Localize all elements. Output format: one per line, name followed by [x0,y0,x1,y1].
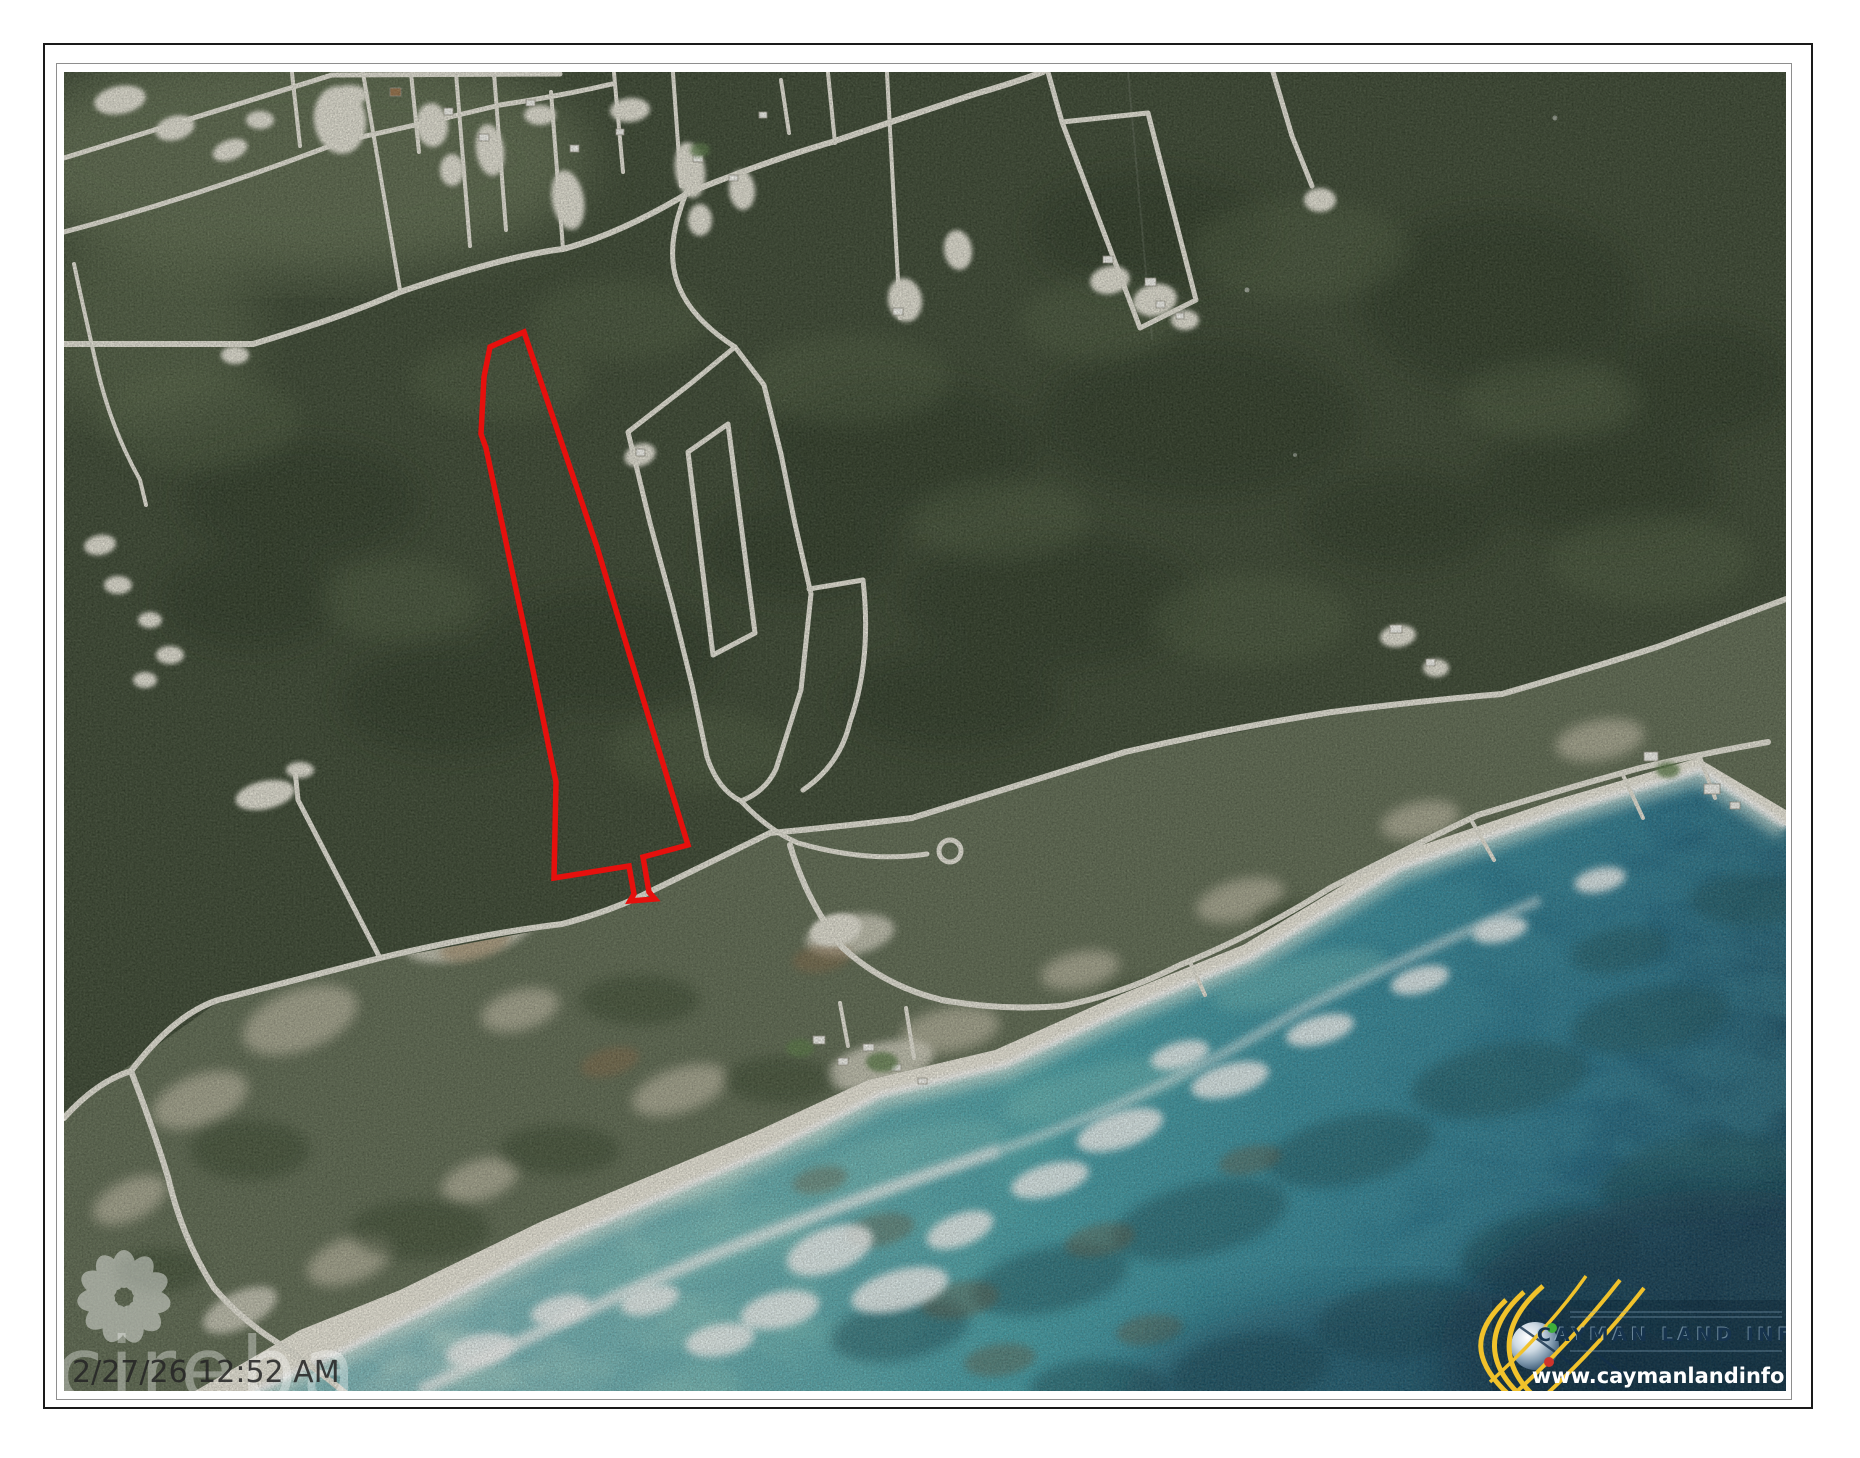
timestamp-overlay: 2/27/26 12:52 AM [72,1355,340,1390]
aerial-map-svg: cireba 2/27/26 12:52 AM [64,72,1786,1391]
logo-website: www.caymanlandinfo.ky [1532,1364,1786,1388]
scanned-aerial-map-page: cireba 2/27/26 12:52 AM [0,0,1860,1458]
logo-title: CAYMAN LAND INFO [1537,1324,1786,1346]
aerial-map-image: cireba 2/27/26 12:52 AM [64,72,1786,1391]
grain-overlay-light [64,72,1786,1391]
